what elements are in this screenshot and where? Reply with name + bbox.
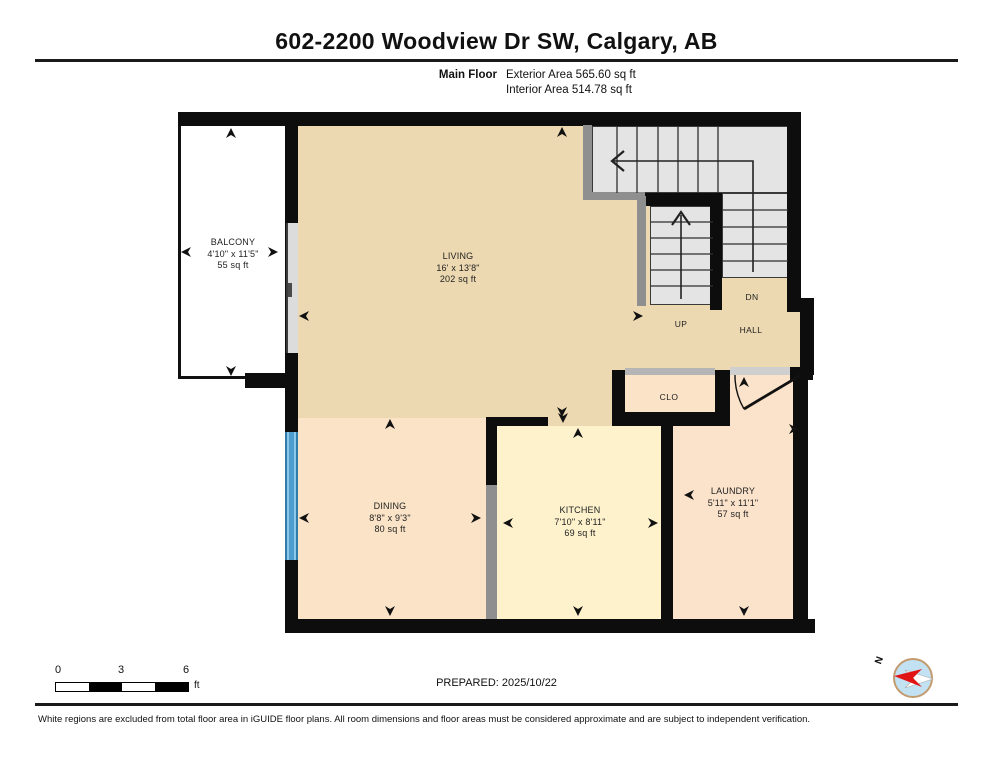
balcony-sliding-door bbox=[286, 223, 298, 353]
room-label-living: LIVING16' x 13'8"202 sq ft bbox=[436, 251, 479, 286]
header-divider bbox=[35, 59, 958, 62]
room-label-closet: CLO bbox=[660, 392, 679, 402]
label-hall: HALL bbox=[740, 325, 763, 335]
room-laundry-floor bbox=[673, 426, 793, 619]
entry-door-opening bbox=[730, 367, 790, 375]
wall-door-hinge bbox=[790, 367, 813, 380]
room-label-dining: DINING8'8" x 9'3"80 sq ft bbox=[369, 501, 411, 536]
disclaimer-text: White regions are excluded from total fl… bbox=[38, 714, 973, 725]
floor-plan-page: 602-2200 Woodview Dr SW, Calgary, AB Mai… bbox=[0, 0, 993, 768]
low-wall-stair-corner bbox=[583, 192, 645, 200]
wall-closet-right bbox=[715, 370, 730, 412]
low-wall-stair-left bbox=[583, 125, 592, 200]
page-title: 602-2200 Woodview Dr SW, Calgary, AB bbox=[0, 28, 993, 55]
wall-kitchen-right bbox=[661, 417, 673, 619]
north-label: N bbox=[873, 655, 886, 666]
wall-right-jog bbox=[787, 298, 814, 312]
exterior-area: Exterior Area 565.60 sq ft bbox=[506, 69, 636, 81]
wall-kitchen-left bbox=[486, 417, 497, 485]
wall-right-hall bbox=[800, 312, 814, 375]
wall-top bbox=[178, 112, 801, 126]
floor-name: Main Floor bbox=[385, 69, 497, 81]
closet-door bbox=[625, 368, 715, 375]
wall-kitchen-top bbox=[486, 417, 548, 426]
stair-up-flight bbox=[650, 206, 713, 305]
room-laundry-entry-floor bbox=[730, 374, 793, 426]
low-wall-up-flight bbox=[637, 196, 646, 306]
low-wall-dining-kitchen bbox=[486, 485, 497, 619]
room-label-kitchen: KITCHEN7'10" x 8'11"69 sq ft bbox=[554, 505, 605, 540]
stair-upper-run bbox=[592, 126, 788, 193]
wall-balcony-stub bbox=[245, 373, 298, 388]
label-stairs-up: UP bbox=[675, 319, 688, 329]
scale-tick-3: 3 bbox=[115, 664, 127, 676]
scale-tick-6: 6 bbox=[180, 664, 192, 676]
footer-divider bbox=[35, 703, 958, 706]
wall-stair-right bbox=[710, 193, 722, 310]
room-label-balcony: BALCONY4'10" x 11'5"55 sq ft bbox=[207, 237, 258, 272]
prepared-date: PREPARED: 2025/10/22 bbox=[0, 677, 993, 689]
interior-area: Interior Area 514.78 sq ft bbox=[506, 84, 632, 96]
stair-down-flight bbox=[722, 193, 788, 278]
wall-bottom bbox=[285, 619, 815, 633]
wall-right-lower bbox=[793, 373, 808, 619]
room-label-laundry: LAUNDRY5'11" x 11'1"57 sq ft bbox=[708, 486, 759, 521]
wall-right-upper bbox=[787, 112, 801, 303]
dining-window bbox=[285, 432, 298, 560]
label-stairs-down: DN bbox=[745, 292, 758, 302]
wall-closet-left bbox=[612, 370, 625, 412]
scale-tick-0: 0 bbox=[52, 664, 64, 676]
